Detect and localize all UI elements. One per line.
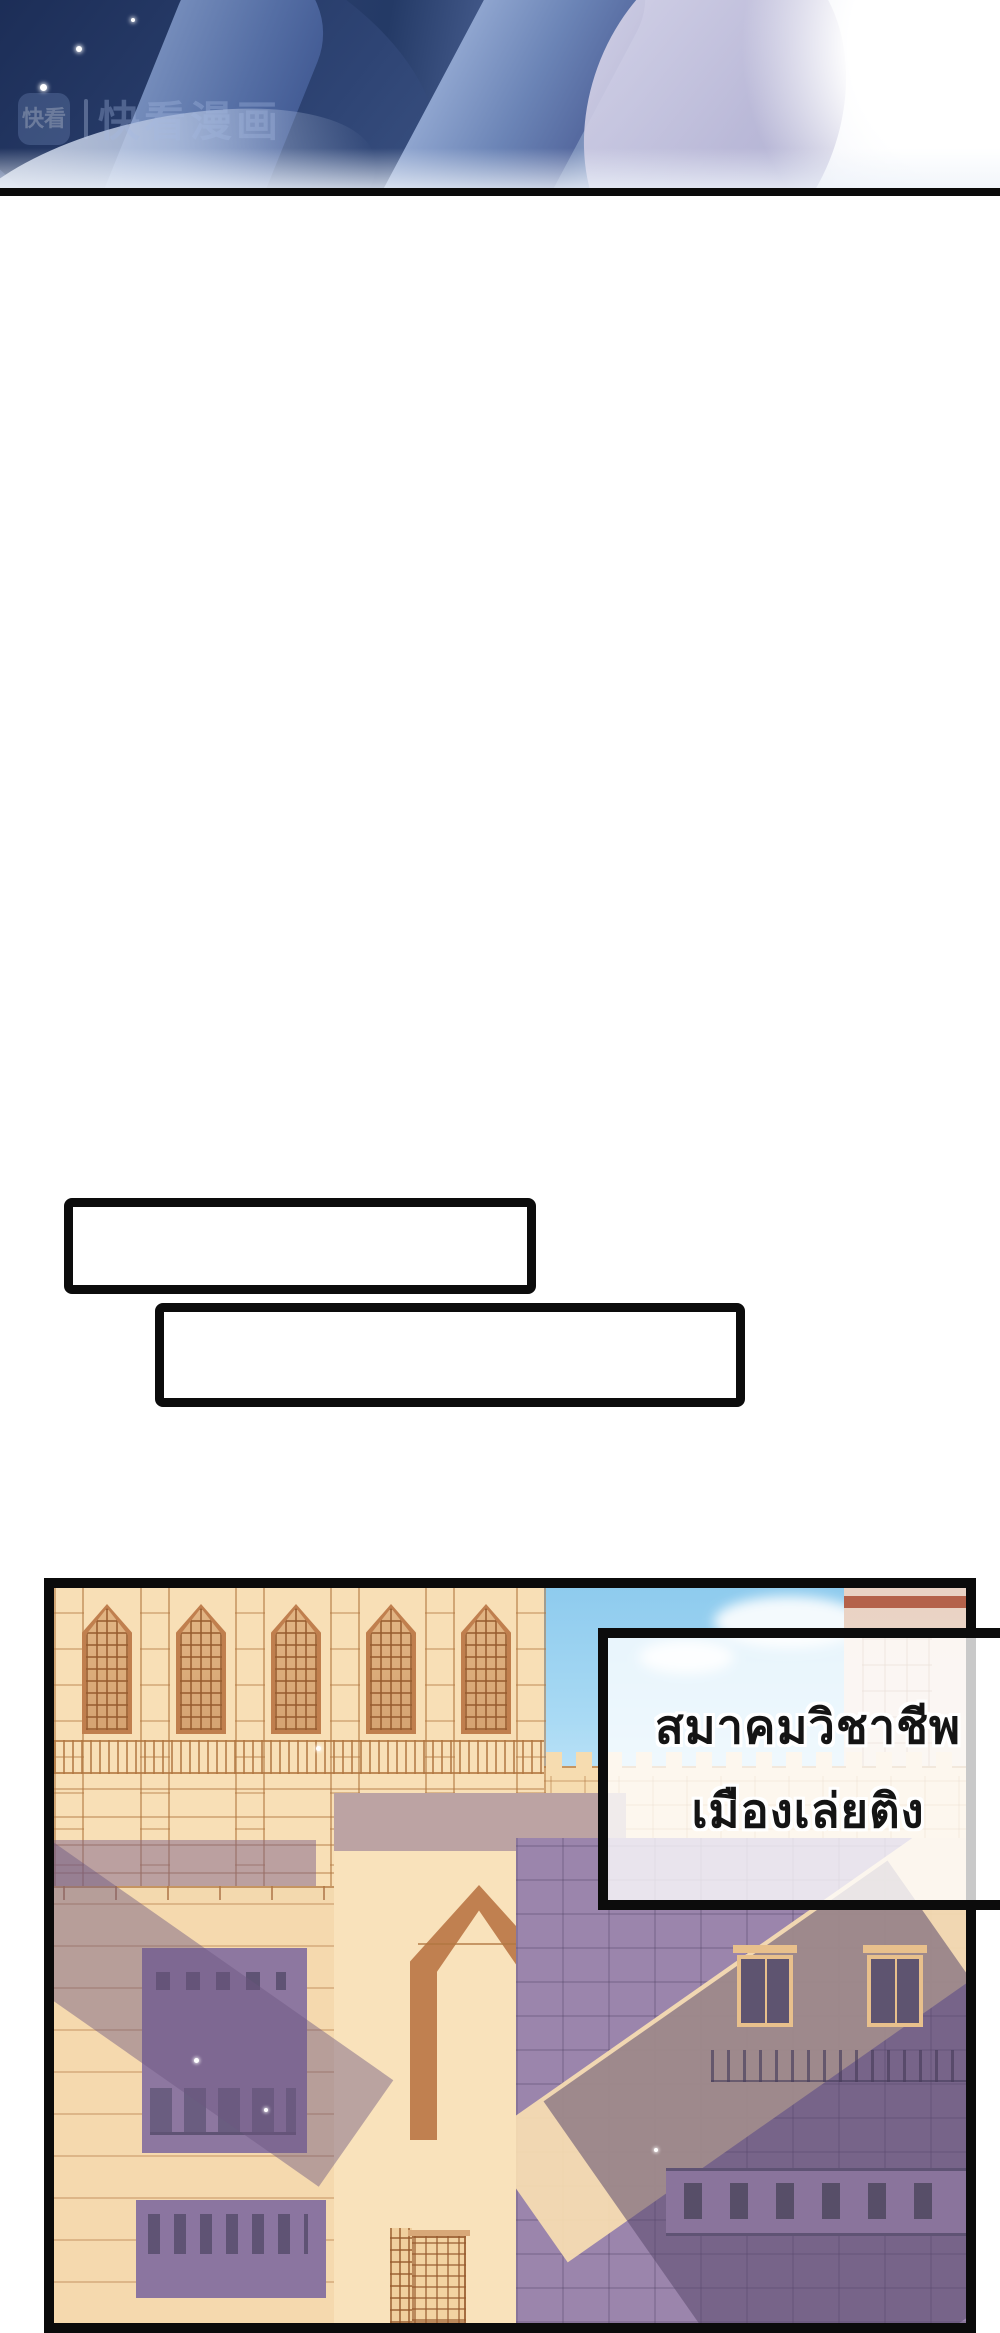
empty-speech-box-2: [155, 1303, 745, 1407]
right-shadowed-building: [516, 1838, 966, 2323]
arch-row: [711, 2050, 966, 2082]
gothic-window: [271, 1604, 321, 1734]
caption-line-2: เมืองเล่ยติง: [612, 1769, 1000, 1853]
sparkle-dot: [194, 2058, 199, 2063]
shadowed-block: [136, 2200, 326, 2298]
corbel-row: [54, 1740, 544, 1774]
sparkle-dot: [76, 46, 82, 52]
caption-line-1: สมาคมวิชาชีพ: [612, 1685, 1000, 1769]
kuaikan-watermark: 快看 快看漫画: [18, 88, 282, 149]
ornate-window: [867, 1955, 923, 2027]
gothic-window: [366, 1604, 416, 1734]
ornate-window: [737, 1955, 793, 2027]
empty-speech-box-1: [64, 1198, 536, 1294]
sparkle-dot: [654, 2148, 658, 2152]
watermark-brand-text: 快看漫画: [98, 88, 282, 149]
sparkle-dot: [131, 18, 135, 22]
kuaikan-logo-icon: 快看: [18, 93, 70, 145]
caption-box: สมาคมวิชาชีพ เมืองเล่ยติง: [598, 1628, 1000, 1910]
gothic-window: [176, 1604, 226, 1734]
top-art-panel: 快看 快看漫画: [0, 0, 1000, 196]
sparkle-dot: [264, 2108, 268, 2112]
gothic-window: [82, 1604, 132, 1734]
sparkle-dot: [316, 1746, 321, 1751]
haze-overlay: [0, 148, 1000, 190]
comic-page: 快看 快看漫画: [0, 0, 1000, 2333]
window-band: [666, 2168, 966, 2236]
lattice-tower: [412, 2236, 466, 2323]
lattice-window: [390, 2228, 412, 2323]
gothic-window: [461, 1604, 511, 1734]
watermark-divider: [84, 99, 88, 139]
